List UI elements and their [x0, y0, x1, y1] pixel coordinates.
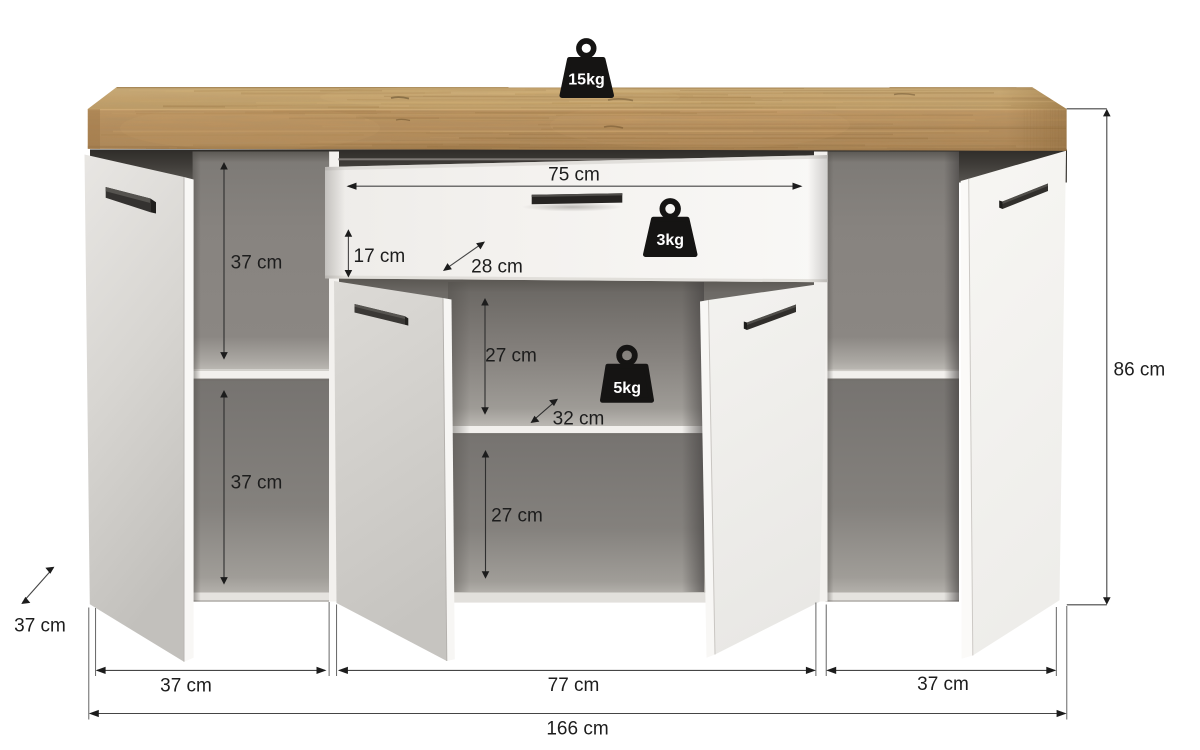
svg-text:37 cm: 37 cm — [160, 676, 212, 697]
svg-text:27 cm: 27 cm — [485, 346, 537, 367]
svg-text:166 cm: 166 cm — [546, 719, 608, 740]
svg-text:27 cm: 27 cm — [491, 505, 543, 526]
svg-text:3kg: 3kg — [657, 232, 685, 249]
svg-text:37 cm: 37 cm — [14, 616, 66, 637]
svg-text:15kg: 15kg — [568, 72, 604, 89]
svg-text:75 cm: 75 cm — [548, 165, 600, 186]
svg-text:37 cm: 37 cm — [231, 253, 283, 274]
svg-text:37 cm: 37 cm — [917, 674, 969, 695]
svg-text:32 cm: 32 cm — [553, 408, 605, 429]
svg-text:17 cm: 17 cm — [354, 246, 406, 267]
svg-text:37 cm: 37 cm — [231, 473, 283, 494]
svg-text:77 cm: 77 cm — [548, 675, 600, 696]
svg-text:86 cm: 86 cm — [1114, 359, 1166, 380]
svg-text:5kg: 5kg — [613, 380, 641, 397]
svg-text:28 cm: 28 cm — [471, 256, 523, 277]
